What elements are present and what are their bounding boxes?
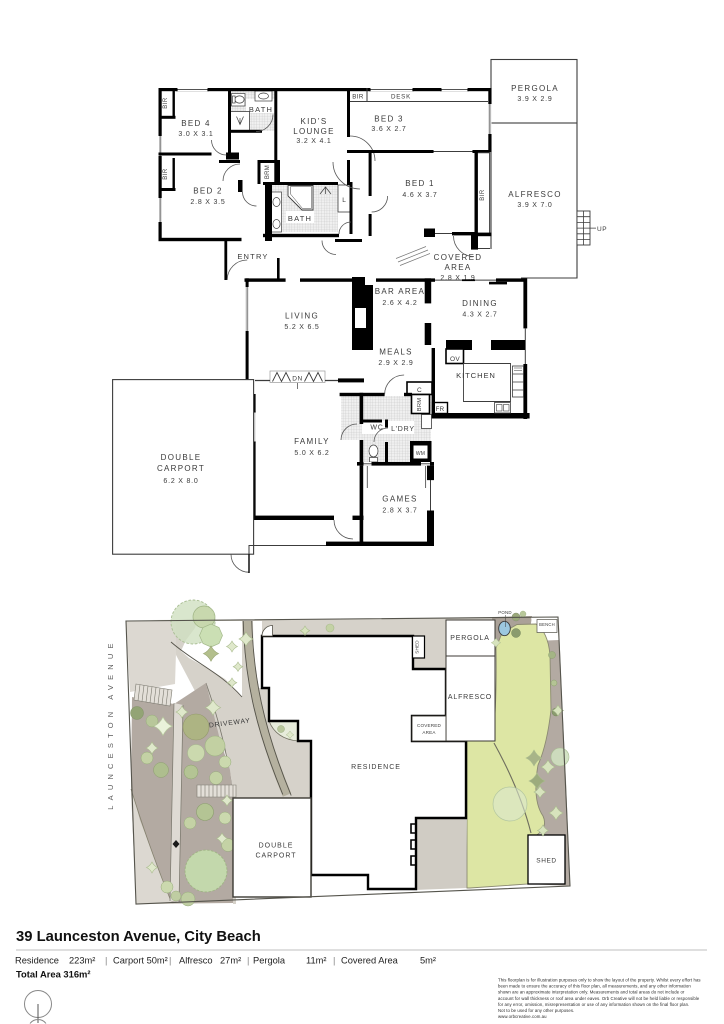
svg-text:www.orbcreative.com.au: www.orbcreative.com.au (498, 1014, 547, 1019)
svg-text:OV: OV (450, 356, 460, 363)
svg-text:PERGOLA: PERGOLA (450, 635, 489, 642)
svg-text:3.2 X 4.1: 3.2 X 4.1 (296, 138, 331, 145)
svg-text:DESK: DESK (391, 94, 411, 101)
svg-text:BATH: BATH (249, 105, 273, 114)
svg-text:WM: WM (416, 451, 425, 457)
svg-text:POND: POND (498, 610, 512, 615)
svg-text:UP: UP (597, 226, 607, 233)
svg-text:4.3 X 2.7: 4.3 X 2.7 (462, 312, 497, 319)
svg-text:|: | (169, 956, 171, 966)
svg-text:223m²: 223m² (69, 956, 95, 966)
svg-text:COVERED: COVERED (417, 723, 442, 728)
svg-text:Residence: Residence (15, 956, 59, 966)
svg-text:CARPORT: CARPORT (255, 853, 296, 860)
svg-text:SHED: SHED (415, 640, 420, 654)
svg-text:6.2 X 8.0: 6.2 X 8.0 (163, 478, 198, 485)
svg-text:3.9 X 7.0: 3.9 X 7.0 (517, 202, 552, 209)
svg-text:DN: DN (292, 376, 302, 383)
svg-text:FR: FR (436, 406, 445, 413)
svg-text:PERGOLA: PERGOLA (511, 84, 559, 93)
svg-text:3.6 X 2.7: 3.6 X 2.7 (371, 126, 406, 133)
svg-text:L’DRY: L’DRY (391, 426, 415, 433)
svg-text:WC: WC (370, 425, 383, 432)
svg-text:COVERED: COVERED (434, 253, 483, 262)
svg-text:5.0 X 6.2: 5.0 X 6.2 (294, 450, 329, 457)
svg-text:Covered Area: Covered Area (341, 956, 399, 966)
svg-text:Carport 50m²: Carport 50m² (113, 956, 168, 966)
svg-text:5m²: 5m² (420, 956, 436, 966)
svg-text:2.6 X 4.2: 2.6 X 4.2 (382, 300, 417, 307)
svg-text:BED 4: BED 4 (181, 119, 211, 128)
svg-text:ENTRY: ENTRY (237, 252, 268, 261)
svg-text:BATH: BATH (288, 214, 312, 223)
svg-text:5.2 X 6.5: 5.2 X 6.5 (284, 324, 319, 331)
svg-text:CARPORT: CARPORT (157, 464, 205, 473)
svg-text:3.9 X 2.9: 3.9 X 2.9 (517, 96, 552, 103)
svg-text:BED 1: BED 1 (405, 179, 435, 188)
svg-text:11m²: 11m² (306, 956, 327, 966)
svg-text:for any error, omission, misre: for any error, omission, misrepresentati… (498, 1002, 689, 1007)
svg-text:|: | (333, 956, 335, 966)
svg-text:2.8 X 3.5: 2.8 X 3.5 (190, 199, 225, 206)
svg-text:LIVING: LIVING (285, 312, 319, 321)
svg-text:MEALS: MEALS (379, 348, 413, 357)
svg-text:2.9 X 2.9: 2.9 X 2.9 (378, 360, 413, 367)
svg-text:ALFRESCO: ALFRESCO (508, 190, 562, 199)
svg-text:FAMILY: FAMILY (294, 437, 330, 446)
svg-text:DOUBLE: DOUBLE (161, 453, 202, 462)
svg-text:DOUBLE: DOUBLE (259, 843, 294, 850)
svg-text:BIR: BIR (163, 97, 169, 109)
svg-text:39 Launceston Avenue, City Bea: 39 Launceston Avenue, City Beach (16, 929, 261, 945)
svg-text:Alfresco: Alfresco (179, 956, 213, 966)
svg-text:BENCH: BENCH (539, 622, 555, 627)
svg-text:BAR AREA: BAR AREA (375, 287, 425, 296)
svg-text:Not to be used for any other p: Not to be used for any other purposes. (498, 1008, 574, 1013)
svg-text:BED 3: BED 3 (374, 115, 404, 124)
svg-text:BIR: BIR (352, 94, 364, 101)
svg-text:GAMES: GAMES (382, 495, 417, 504)
svg-text:ALFRESCO: ALFRESCO (448, 694, 492, 701)
svg-text:SHED: SHED (536, 858, 556, 865)
svg-text:C: C (417, 387, 422, 394)
svg-text:shown are an approximate inter: shown are an approximate interpretation … (498, 990, 685, 995)
svg-text:BRM: BRM (265, 165, 271, 179)
svg-text:BIR: BIR (480, 189, 486, 201)
svg-text:|: | (105, 956, 107, 966)
svg-text:Pergola: Pergola (253, 956, 286, 966)
svg-text:been made to ensure the accura: been made to ensure the accuracy of this… (498, 984, 691, 989)
svg-text:Total Area 316m²: Total Area 316m² (16, 969, 91, 980)
svg-text:4.6 X 3.7: 4.6 X 3.7 (402, 192, 437, 199)
svg-text:BIR: BIR (163, 168, 169, 180)
svg-text:KID’S: KID’S (301, 117, 328, 126)
svg-text:account for wall thickness or: account for wall thickness or roof area … (498, 996, 700, 1001)
svg-text:2.8 X 3.7: 2.8 X 3.7 (382, 508, 417, 515)
svg-text:BRM: BRM (417, 398, 423, 411)
svg-text:This floorplan is for illustra: This floorplan is for illustration purpo… (498, 978, 701, 983)
svg-text:LAUNCESTON AVENUE: LAUNCESTON AVENUE (106, 638, 115, 809)
svg-text:RESIDENCE: RESIDENCE (351, 764, 401, 771)
svg-text:DINING: DINING (462, 299, 498, 308)
svg-text:AREA: AREA (422, 730, 436, 735)
svg-text:27m²: 27m² (220, 956, 241, 966)
svg-text:BED 2: BED 2 (193, 187, 223, 196)
svg-text:KITCHEN: KITCHEN (456, 371, 496, 380)
svg-text:|: | (247, 956, 249, 966)
svg-text:LOUNGE: LOUNGE (293, 127, 335, 136)
svg-text:L: L (342, 197, 346, 204)
svg-text:3.0 X 3.1: 3.0 X 3.1 (178, 131, 213, 138)
svg-text:AREA: AREA (445, 263, 472, 272)
